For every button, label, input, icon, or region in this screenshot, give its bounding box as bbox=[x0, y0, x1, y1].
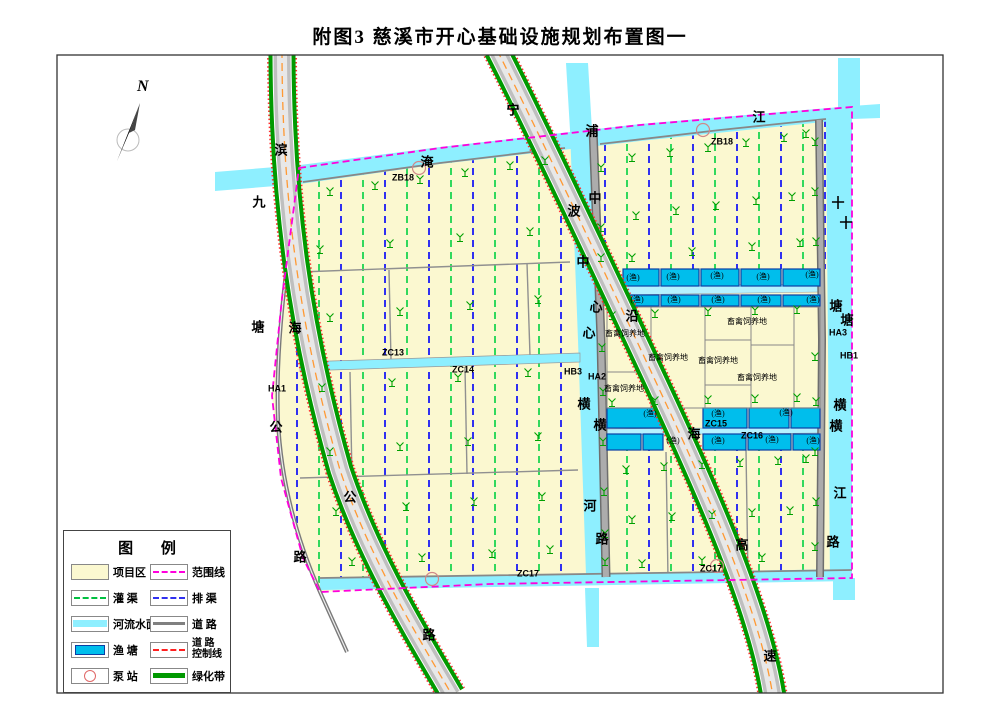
pond-label: (渔) bbox=[666, 437, 679, 445]
zone-label: ZC13 bbox=[382, 349, 404, 358]
road-name-char: 横 bbox=[593, 419, 606, 432]
green-belt-swatch bbox=[150, 668, 188, 684]
legend-title: 图 例 bbox=[64, 537, 230, 558]
legend-label: 灌 渠 bbox=[113, 590, 138, 606]
pond-label: (渔) bbox=[765, 436, 778, 444]
legend-item-fish-pond: 渔 塘 bbox=[71, 642, 138, 658]
irrigation-swatch bbox=[71, 590, 109, 606]
legend-label: 道 路 控制线 bbox=[192, 639, 222, 660]
road-name-char: 十 bbox=[839, 217, 852, 230]
landuse-label: 畜禽饲养地 bbox=[648, 354, 688, 362]
pond-label: (渔) bbox=[643, 410, 656, 418]
zone-label: HA3 bbox=[829, 329, 847, 338]
road-name-char: 塘 bbox=[251, 321, 264, 334]
pond-label: (渔) bbox=[806, 296, 819, 304]
zone-label: HB1 bbox=[840, 352, 858, 361]
road-name-char: 海 bbox=[288, 322, 301, 335]
pond-label: (渔) bbox=[630, 296, 643, 304]
landuse-label: 畜禽饲养地 bbox=[605, 330, 645, 338]
road-name-char: 路 bbox=[595, 533, 608, 546]
road-name-char: 路 bbox=[826, 536, 839, 549]
landuse-label: 畜禽饲养地 bbox=[727, 318, 767, 326]
road-name-char: 滨 bbox=[274, 144, 287, 157]
north-arrow: N bbox=[95, 78, 165, 168]
zone-label: ZC14 bbox=[452, 366, 474, 375]
legend-item-green-belt: 绿化带 bbox=[150, 668, 225, 684]
legend-label: 渔 塘 bbox=[113, 642, 138, 658]
pond-label: (渔) bbox=[756, 273, 769, 281]
river-name-char: 横 bbox=[577, 398, 590, 411]
legend-item-river: 河流水面 bbox=[71, 616, 157, 632]
pond-label: (渔) bbox=[806, 437, 819, 445]
boundary-swatch bbox=[150, 564, 188, 580]
road-name-char: 高 bbox=[735, 539, 748, 552]
pond-label: (渔) bbox=[666, 273, 679, 281]
river-name-char: 河 bbox=[583, 500, 596, 513]
zone-label: ZC17 bbox=[517, 570, 539, 579]
legend-item-boundary: 范围线 bbox=[150, 564, 225, 580]
road-name-char: 沿 bbox=[625, 310, 638, 323]
road-name-char: 宁 bbox=[506, 104, 519, 117]
fish-pond-swatch bbox=[71, 642, 109, 658]
river-name-char: 十 bbox=[831, 197, 844, 210]
river-name-char: 心 bbox=[582, 327, 595, 340]
road-swatch bbox=[150, 616, 188, 632]
pump-station-icon bbox=[71, 668, 109, 684]
drainage-swatch bbox=[150, 590, 188, 606]
pond-label: (渔) bbox=[711, 410, 724, 418]
legend-label: 道 路 bbox=[192, 616, 217, 632]
landuse-label: 畜禽饲养地 bbox=[698, 357, 738, 365]
legend-label: 排 渠 bbox=[192, 590, 217, 606]
pond-label: (渔) bbox=[757, 296, 770, 304]
zone-label: ZC17 bbox=[700, 565, 722, 574]
road-name-char: 塘 bbox=[840, 314, 853, 327]
river-name-char: 横 bbox=[833, 399, 846, 412]
landuse-label: 畜禽饲养地 bbox=[604, 385, 644, 393]
river-name-char: 江 bbox=[833, 487, 846, 500]
river-name-char: 中 bbox=[576, 256, 589, 269]
zone-label: ZC16 bbox=[741, 432, 763, 441]
plan-map-page: 附图3 慈溪市开心基础设施规划布置图一 bbox=[0, 0, 1000, 725]
road-name-char: 公 bbox=[269, 421, 282, 434]
road-name-char: 波 bbox=[567, 205, 580, 218]
pond-label: (渔) bbox=[711, 437, 724, 445]
road-name-char: 九 bbox=[252, 196, 265, 209]
pond-label: (渔) bbox=[626, 274, 639, 282]
zone-label: HB3 bbox=[564, 368, 582, 377]
project-area-swatch bbox=[71, 564, 109, 580]
road-name-char: 海 bbox=[687, 428, 700, 441]
road-name-char: 公 bbox=[343, 491, 356, 504]
road-name-char: 路 bbox=[293, 551, 306, 564]
zone-label: ZC15 bbox=[705, 420, 727, 429]
road-name-char: 速 bbox=[763, 650, 776, 663]
pond-label: (渔) bbox=[711, 296, 724, 304]
pond-label: (渔) bbox=[779, 409, 792, 417]
legend-item-irrigation: 灌 渠 bbox=[71, 590, 138, 606]
road-name-char: 横 bbox=[829, 420, 842, 433]
legend-label: 绿化带 bbox=[192, 668, 225, 684]
legend-item-drainage: 排 渠 bbox=[150, 590, 217, 606]
road-name-char: 路 bbox=[422, 629, 435, 642]
river-name-char: 江 bbox=[752, 111, 765, 124]
legend-item-pump-station: 泵 站 bbox=[71, 668, 138, 684]
legend-label: 泵 站 bbox=[113, 668, 138, 684]
zone-label: ZB18 bbox=[392, 174, 414, 183]
river-name-char: 浦 bbox=[585, 125, 598, 138]
river-name-char: 淹 bbox=[420, 156, 433, 169]
pond-label: (渔) bbox=[805, 271, 818, 279]
road-name-char: 中 bbox=[588, 192, 601, 205]
zone-label: HA2 bbox=[588, 373, 606, 382]
river-swatch bbox=[71, 616, 109, 632]
north-label: N bbox=[137, 78, 149, 96]
legend: 图 例 项目区 灌 渠 河流水面 渔 塘 泵 站 范围线 排 渠 bbox=[63, 530, 231, 693]
river-name-char: 塘 bbox=[829, 300, 842, 313]
legend-label: 项目区 bbox=[113, 564, 146, 580]
pond-label: (渔) bbox=[710, 272, 723, 280]
zone-label: ZB18 bbox=[711, 138, 733, 147]
legend-item-road: 道 路 bbox=[150, 616, 217, 632]
north-arrow-icon bbox=[95, 78, 165, 168]
road-control-swatch bbox=[150, 642, 188, 658]
zone-label: HA1 bbox=[268, 385, 286, 394]
legend-label: 范围线 bbox=[192, 564, 225, 580]
pond-label: (渔) bbox=[667, 296, 680, 304]
legend-item-road-control: 道 路 控制线 bbox=[150, 639, 222, 660]
road-name-char: 心 bbox=[589, 301, 602, 314]
landuse-label: 畜禽饲养地 bbox=[737, 374, 777, 382]
legend-item-project-area: 项目区 bbox=[71, 564, 146, 580]
